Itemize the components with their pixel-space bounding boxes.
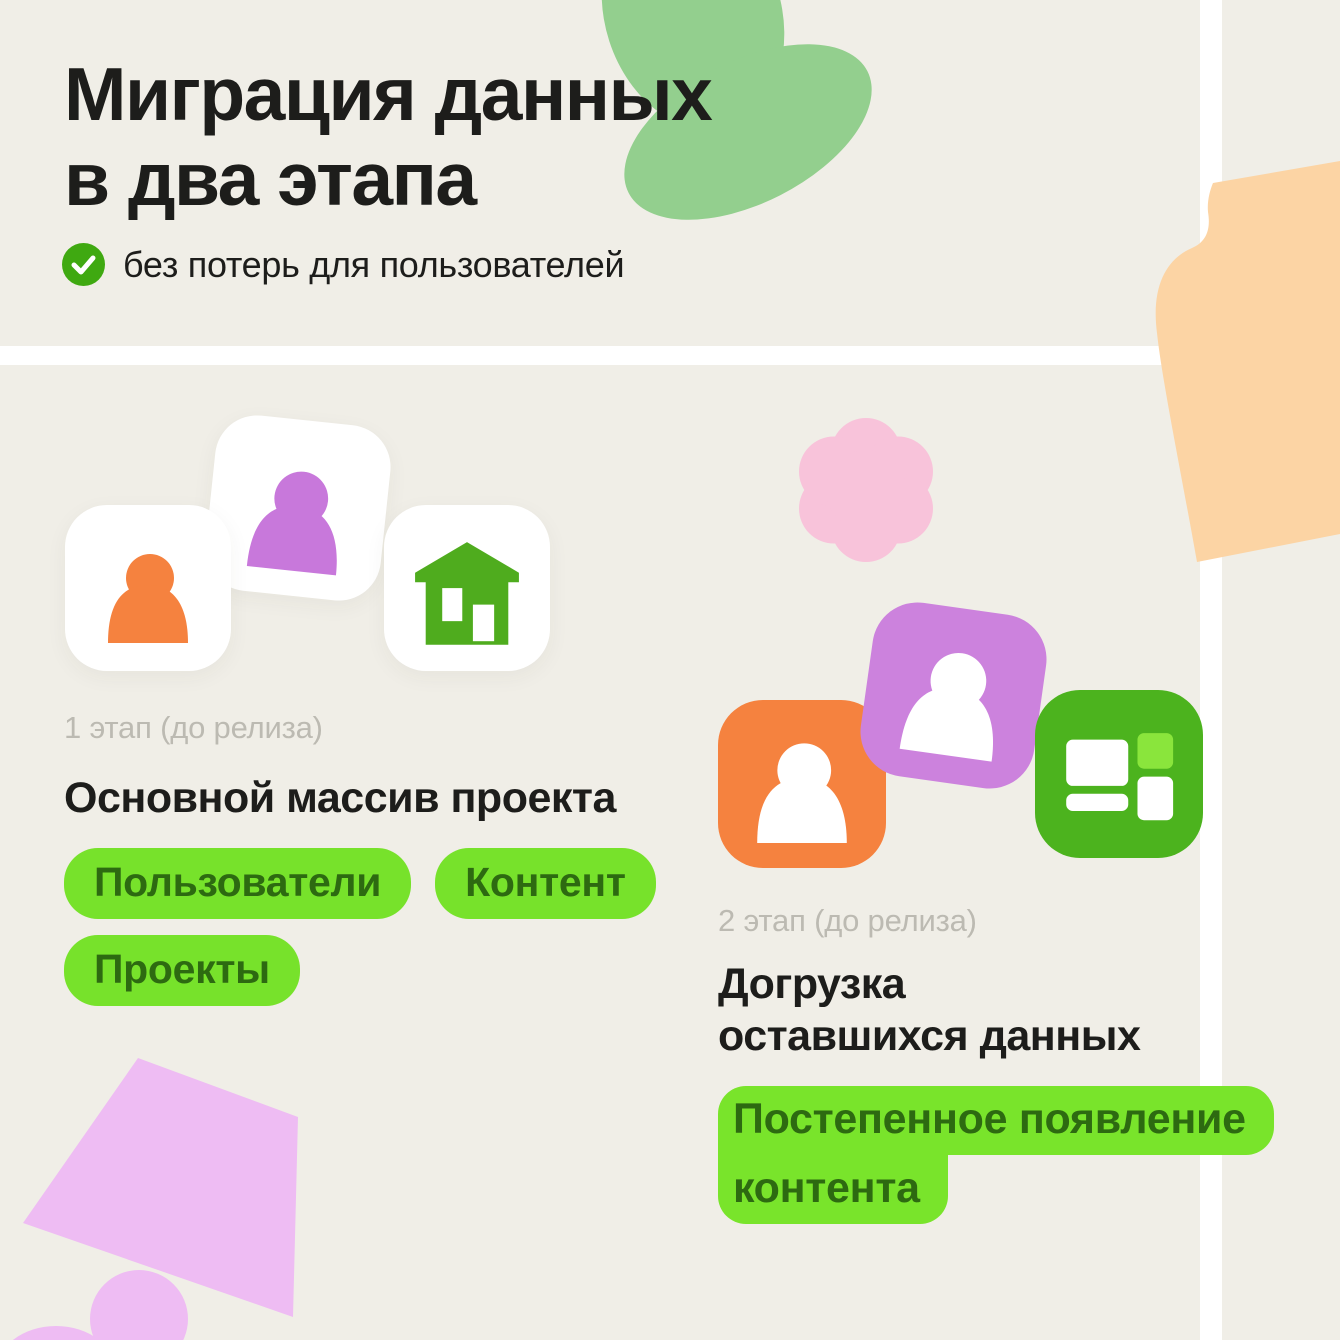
card-house (384, 505, 550, 671)
title-line-2: в два этапа (64, 137, 711, 222)
subtitle-text: без потерь для пользователей (123, 244, 624, 286)
pink-flower-shape (799, 418, 933, 562)
tag-pill: Пользователи (64, 848, 411, 919)
subtitle-badge: без потерь для пользователей (62, 243, 624, 286)
title-line-1: Миграция данных (64, 52, 711, 137)
check-circle-icon (62, 243, 105, 286)
page-title: Миграция данных в два этапа (64, 52, 711, 222)
layout-grid-icon (1053, 708, 1185, 840)
highlight-line-2: контента (718, 1155, 948, 1224)
stage1-heading: Основной массив проекта (64, 772, 616, 824)
purple-bottom-shapes (0, 1058, 298, 1340)
tag-pill: Контент (435, 848, 655, 919)
tile-user-purple (855, 597, 1053, 795)
stage1-label: 1 этап (до релиза) (64, 710, 323, 746)
horizontal-divider (0, 346, 1340, 365)
purple-ellipse-shape (0, 1326, 116, 1340)
stage2-heading-line-1: Догрузка (718, 958, 1140, 1010)
purple-trapezoid-shape (23, 1058, 298, 1317)
tile-layout-green (1035, 690, 1203, 858)
tag-pill: Проекты (64, 935, 300, 1006)
house-icon (408, 535, 526, 653)
infographic-canvas: Миграция данных в два этапа без потерь д… (0, 0, 1340, 1340)
user-icon (886, 641, 1017, 772)
stage2-heading-line-2: оставшихся данных (718, 1010, 1140, 1062)
user-icon (98, 551, 198, 651)
purple-circle-shape (90, 1270, 188, 1340)
stage1-tags: Пользователи Контент Проекты (64, 848, 684, 1006)
user-icon (746, 740, 858, 852)
highlight-line-1: Постепенное появление (718, 1086, 1274, 1155)
card-user-orange (65, 505, 231, 671)
user-icon (235, 462, 358, 585)
stage2-highlight: Постепенное появление контента (718, 1086, 1274, 1224)
stage2-label: 2 этап (до релиза) (718, 903, 977, 939)
stage2-heading: Догрузка оставшихся данных (718, 958, 1140, 1063)
